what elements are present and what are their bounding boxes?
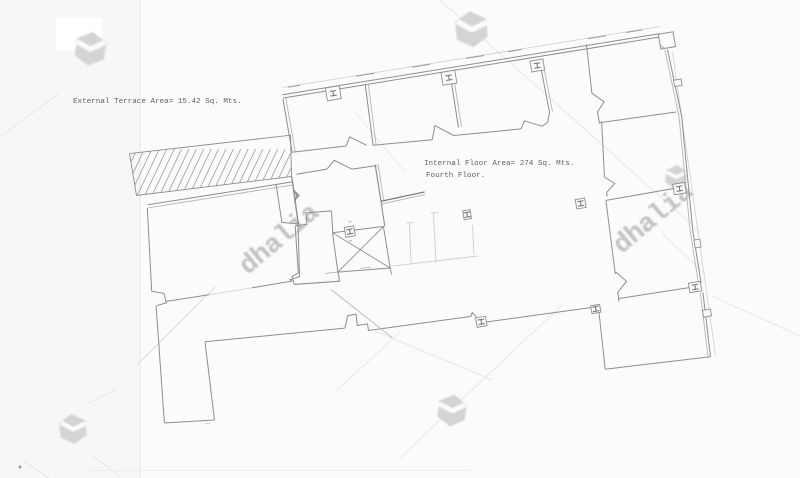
svg-text:External Terrace Area= 15.42 S: External Terrace Area= 15.42 Sq. Mts. xyxy=(73,98,242,106)
svg-text:Internal Floor Area= 274 Sq. M: Internal Floor Area= 274 Sq. Mts. xyxy=(424,160,574,168)
svg-text:Fourth Floor.: Fourth Floor. xyxy=(426,172,485,180)
